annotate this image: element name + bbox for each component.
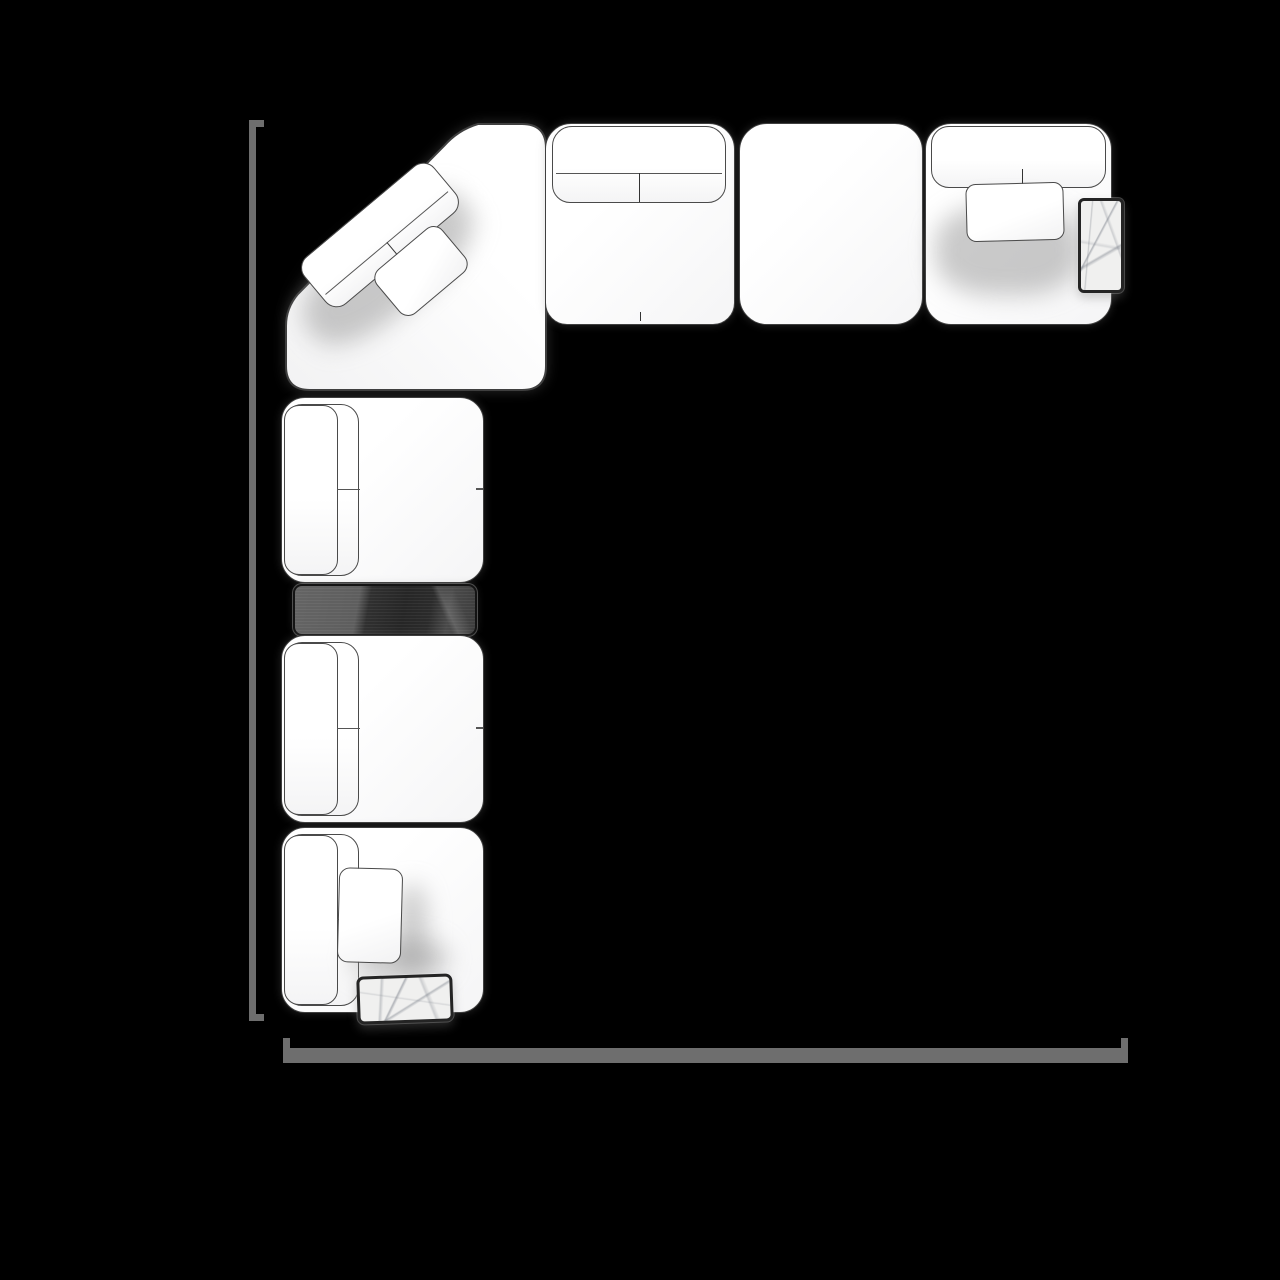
column-seat-2[interactable] xyxy=(281,635,484,823)
throw-pillow-top[interactable] xyxy=(965,182,1064,243)
wall-line-left-bottom-tick xyxy=(249,1014,264,1021)
column-seat-1[interactable] xyxy=(281,397,484,583)
seat-front-seam xyxy=(640,312,641,321)
wall-line-bottom-right-tick xyxy=(1121,1038,1128,1063)
cushion-divider xyxy=(337,728,360,729)
top-row-ottoman[interactable] xyxy=(739,123,923,325)
console-table[interactable] xyxy=(293,584,477,636)
back-cushion xyxy=(284,835,338,1005)
back-cushion xyxy=(552,126,726,203)
back-cushion xyxy=(931,126,1106,188)
cushion-divider xyxy=(639,173,640,202)
wall-line-bottom-left-tick xyxy=(283,1038,290,1063)
back-cushion xyxy=(284,643,338,815)
back-cushion xyxy=(284,405,338,575)
seat-edge-tick xyxy=(476,727,483,729)
top-row-seat-1[interactable] xyxy=(545,123,735,325)
marble-tray-table[interactable] xyxy=(356,973,454,1024)
wall-line-bottom xyxy=(283,1048,1128,1063)
marble-side-table[interactable] xyxy=(1078,198,1124,293)
cushion-divider xyxy=(337,489,360,490)
wall-line-left-top-tick xyxy=(249,120,264,127)
throw-pillow-bottom[interactable] xyxy=(337,867,403,964)
wall-line-left xyxy=(249,120,256,1021)
floorplan-canvas xyxy=(0,0,1280,1280)
seat-edge-tick xyxy=(476,488,483,490)
